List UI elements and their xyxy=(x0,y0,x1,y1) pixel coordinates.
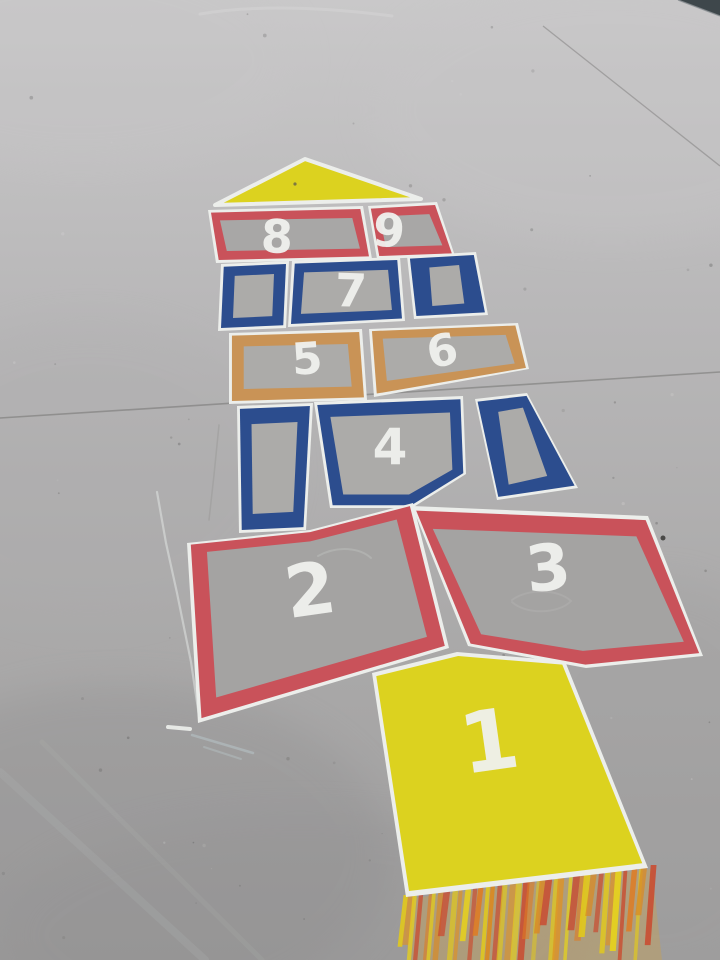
square-7-left-interior xyxy=(233,274,274,318)
square-4-number: 4 xyxy=(373,418,408,476)
square-9-number: 9 xyxy=(371,202,408,259)
hopscotch-square-7-left xyxy=(218,261,289,331)
square-8-number: 8 xyxy=(260,209,294,264)
hopscotch-square-8: 8 xyxy=(208,206,372,264)
pavement-speck xyxy=(293,182,296,185)
pavement-speck xyxy=(661,536,666,541)
hopscotch-scene-canvas: 897564231 xyxy=(0,0,720,960)
square-5-number: 5 xyxy=(290,333,324,386)
square-4-left-interior xyxy=(252,422,298,514)
chalk-mark xyxy=(168,727,190,729)
square-7-number: 7 xyxy=(334,263,368,318)
hopscotch-square-4-left xyxy=(237,403,313,533)
square-7-right-interior xyxy=(429,265,464,306)
hopscotch-square-7-right xyxy=(407,252,488,319)
hopscotch-square-5: 5 xyxy=(229,329,367,404)
hopscotch-photo: 897564231 xyxy=(0,0,720,960)
hopscotch-square-7: 7 xyxy=(288,257,405,327)
